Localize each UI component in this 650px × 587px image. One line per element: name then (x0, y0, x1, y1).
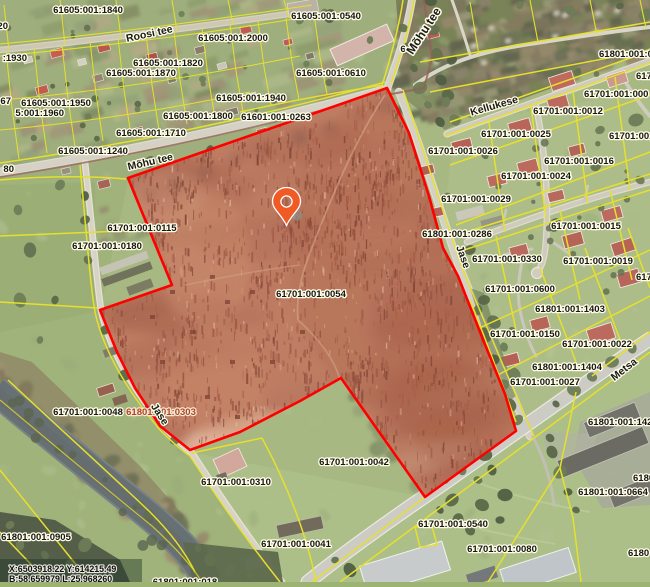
svg-text:6180: 6180 (628, 548, 649, 559)
svg-text:61701:001:0022: 61701:001:0022 (562, 339, 632, 350)
svg-text:61701:001:0025: 61701:001:0025 (481, 129, 551, 140)
svg-text:61701:001:0016: 61701:001:0016 (544, 156, 614, 167)
svg-text:61701:001:0115: 61701:001:0115 (107, 223, 177, 234)
svg-text:61605:001:1800: 61605:001:1800 (163, 111, 233, 122)
svg-text:61701:001:0015: 61701:001:0015 (551, 221, 621, 232)
svg-text:6180: 6180 (633, 473, 650, 484)
svg-text:B:58.659979 L:25.968260: B:58.659979 L:25.968260 (9, 574, 112, 582)
svg-text:61605:001:0610: 61605:001:0610 (296, 68, 366, 79)
svg-text:61801:001:018: 61801:001:018 (153, 577, 217, 582)
svg-text:6170: 6170 (636, 71, 650, 82)
svg-text:5:001:1960: 5:001:1960 (15, 108, 64, 119)
svg-text:61605:001:1240: 61605:001:1240 (58, 146, 128, 157)
svg-text:61801:001:1404: 61801:001:1404 (532, 362, 602, 373)
svg-text:61701:001:000: 61701:001:000 (584, 89, 648, 100)
svg-text:61701:001:0027: 61701:001:0027 (510, 377, 580, 388)
svg-text:61605:001:1710: 61605:001:1710 (116, 128, 186, 139)
svg-text:61801:001:0664: 61801:001:0664 (578, 487, 648, 498)
svg-text:61801:001:00: 61801:001:00 (599, 49, 650, 60)
svg-text:61701:001:0026: 61701:001:0026 (428, 146, 498, 157)
svg-text:61701:001:0080: 61701:001:0080 (467, 544, 537, 555)
svg-text:61605:001:0540: 61605:001:0540 (291, 11, 361, 22)
svg-text:61605:001:1870: 61605:001:1870 (106, 68, 176, 79)
svg-text:61701:001:0150: 61701:001:0150 (490, 329, 560, 340)
svg-text:61701:001:0019: 61701:001:0019 (563, 256, 633, 267)
svg-text:61701:001:0029: 61701:001:0029 (441, 194, 511, 205)
svg-text:67: 67 (0, 96, 11, 107)
svg-text:61701:001:0540: 61701:001:0540 (418, 519, 488, 530)
svg-text:61801:001:1403: 61801:001:1403 (535, 304, 605, 315)
svg-text:61605:001:1940: 61605:001:1940 (216, 93, 286, 104)
svg-text:61701:001:0330: 61701:001:0330 (472, 254, 542, 265)
svg-text:61701:001:0180: 61701:001:0180 (72, 241, 142, 252)
svg-text:X:6503918.22 Y:614215.49: X:6503918.22 Y:614215.49 (9, 564, 116, 574)
svg-text:617: 617 (636, 272, 650, 283)
svg-text:20: 20 (0, 21, 8, 32)
svg-text:61801:001:142: 61801:001:142 (588, 417, 650, 428)
svg-text:61605:001:2000: 61605:001:2000 (198, 33, 268, 44)
svg-text:61701:001:0024: 61701:001:0024 (501, 171, 571, 182)
svg-text:80: 80 (3, 164, 14, 175)
svg-text:61701:001:0054: 61701:001:0054 (276, 289, 346, 300)
svg-text::1930: :1930 (3, 53, 27, 64)
svg-text:61701:001:0012: 61701:001:0012 (533, 106, 603, 117)
svg-text:61801:001:0905: 61801:001:0905 (1, 532, 71, 543)
svg-text:61601:001:0263: 61601:001:0263 (241, 112, 311, 123)
svg-text:61701:001:0041: 61701:001:0041 (261, 539, 331, 550)
svg-text:61701:001:0: 61701:001:0 (609, 131, 650, 142)
svg-text:61701:001:0048: 61701:001:0048 (53, 407, 123, 418)
svg-text:61801:001:0286: 61801:001:0286 (422, 229, 492, 240)
svg-text:61701:001:0310: 61701:001:0310 (201, 477, 271, 488)
svg-text:61701:001:0600: 61701:001:0600 (485, 284, 555, 295)
svg-text:61605:001:1840: 61605:001:1840 (53, 5, 123, 16)
svg-text:61701:001:0042: 61701:001:0042 (319, 457, 389, 468)
